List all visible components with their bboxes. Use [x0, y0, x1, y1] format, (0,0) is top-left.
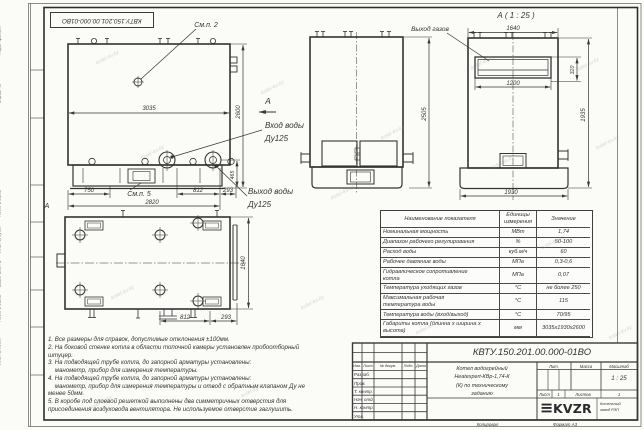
dim-1640-plan: 1640 [241, 256, 247, 270]
logo-caption-line2: завод РЭП [600, 408, 619, 414]
title-block-doc-number: КВТУ.150.201.00.000-01ВО [427, 345, 637, 362]
stamp-mass-label: Масса [571, 364, 601, 369]
spec-cell-units: °С [500, 294, 537, 310]
note-1: 1. Все размеры для справок, допустимые о… [48, 336, 360, 344]
stamp-lit-label: Лит. [537, 364, 571, 369]
dim-465: 465 [230, 171, 236, 180]
note-5: 5. В коробе под слоевой решеткой выполне… [48, 398, 360, 414]
label-water-in: Вход воды [265, 121, 304, 130]
stamp-col-izm: Изм. [352, 364, 362, 368]
spec-cell-value: 70/95 [537, 310, 590, 320]
spec-cell-name: Номинальная мощность [381, 228, 500, 238]
dim-293: 293 [222, 188, 234, 194]
section-a-view [447, 28, 592, 200]
stamp-row-prov: Пров. [354, 381, 366, 386]
plan-view [56, 211, 253, 326]
spec-cell-value: 0,07 [537, 268, 590, 284]
stamp-sheets-label: Листов [565, 392, 601, 397]
dim-320: 320 [570, 66, 576, 75]
stamp-scale-label: Масштаб [601, 364, 637, 369]
logo-caption-line1: Котельный [600, 402, 621, 408]
note-4: 4. На подводящей трубе котла, до запорно… [48, 375, 360, 398]
section-a-title: А ( 1 : 25 ) [496, 11, 535, 20]
drawing-sheet: См.п. 2 3035 2600 А Вход воды Ду125 Выхо… [0, 0, 644, 430]
note-3: 3. На подводящей трубе котла, до запорно… [48, 359, 360, 375]
frame-label-inv-podl: Инв. № подл. [0, 322, 4, 382]
spec-cell-name: Температура воды (вход/выход) [381, 310, 500, 320]
spec-cell-name: Диапазон рабочего регулирования [381, 238, 500, 248]
dim-1930: 1930 [504, 190, 518, 196]
dim-750: 750 [84, 188, 95, 194]
spec-cell-name: Температура уходящих газов [381, 284, 500, 294]
spec-cell-name: Рабочее давление воды [381, 258, 500, 268]
doc-title-line4: заданию [427, 390, 537, 398]
frame-label-sprav-no: Справ. № [0, 64, 4, 124]
stamp-row-nachotd: Нач. отд. [354, 397, 374, 402]
dim-812: 812 [193, 188, 204, 194]
stamp-scale-value: 1 : 25 [601, 375, 637, 382]
label-water-in-dn: Ду125 [264, 134, 289, 143]
dim-2820: 2820 [144, 200, 159, 206]
spec-cell-value: не более 250 [537, 284, 590, 294]
spec-cell-name: Габариты котла (длинна х ширина х высота… [381, 320, 500, 336]
doc-title-line2: Heatexpert-КВр-1,74-К [427, 373, 537, 381]
label-gas-outlet: Выход газов [411, 25, 449, 33]
front-view [301, 32, 432, 194]
spec-header-name: Наименование показателя [381, 211, 500, 228]
frame-label-perv-primen: Перв. примен. [0, 11, 4, 71]
dim-812-plan: 812 [180, 315, 191, 321]
spec-header-value: Значение [537, 211, 590, 228]
stamp-row-nkontr: Н. контр. [354, 405, 374, 410]
stamp-col-dokum: № докум. [374, 364, 402, 368]
spec-cell-units: °С [500, 284, 537, 294]
dim-2505: 2505 [422, 107, 428, 122]
doc-title-line3: (К) по техническому [427, 382, 537, 390]
spec-table: Наименование показателя Единицы измерени… [380, 210, 593, 338]
spec-cell-value: 60 [537, 248, 590, 258]
side-view [68, 29, 276, 210]
label-water-out-dn: Ду125 [247, 200, 272, 209]
spec-cell-units: МПа [500, 258, 537, 268]
format-label: Формат А3 [535, 422, 595, 427]
stamp-row-razrab: Разраб. [354, 372, 370, 377]
dim-1640-top: 1640 [506, 26, 520, 32]
spec-cell-name: Расход воды [381, 248, 500, 258]
kvzr-logo-text: KVZR [553, 402, 592, 416]
spec-cell-name: Гидравлическое сопротивление котла [381, 268, 500, 284]
spec-cell-units: МВт [500, 228, 537, 238]
spec-cell-name: Максимальная рабочая температура воды [381, 294, 500, 310]
stamp-sheet-value: 1 [552, 392, 565, 397]
dim-293-plan: 293 [220, 315, 232, 321]
kvzr-logo-icon: ≡ [540, 398, 553, 418]
stamp-row-utv: Утв. [354, 414, 364, 419]
zone-letter-a: А [44, 203, 50, 210]
spec-cell-value: 0,3-0,6 [537, 258, 590, 268]
callout-smp2: См.п. 2 [194, 22, 218, 29]
stamp-col-list: Лист [362, 364, 374, 368]
stamp-sheets-value: 1 [601, 392, 637, 397]
note-2: 2. На боковой стенке котла в области топ… [48, 344, 360, 360]
top-document-number: КВТУ.150.201.00.000-01ВО [62, 17, 142, 24]
spec-cell-value: 50-100 [537, 238, 590, 248]
callout-smp5: См.п. 5 [127, 191, 151, 198]
spec-cell-value: 1,74 [537, 228, 590, 238]
copied-label: Копировал [440, 422, 535, 427]
label-water-out: Выход воды [248, 187, 293, 196]
technical-notes: 1. Все размеры для справок, допустимые о… [48, 336, 360, 414]
spec-header-units: Единицы измерения [500, 211, 537, 228]
spec-cell-units: куб.м/ч [500, 248, 537, 258]
spec-cell-units: °С [500, 310, 537, 320]
stamp-col-data: Дата [415, 364, 427, 368]
dim-3035: 3035 [142, 106, 156, 112]
dim-2600: 2600 [236, 105, 242, 120]
spec-cell-value: 3035х1930х2600 [537, 320, 590, 336]
spec-cell-units: % [500, 238, 537, 248]
stamp-col-podp: Подп. [402, 364, 415, 368]
dim-1935: 1935 [581, 108, 587, 122]
spec-cell-value: 115 [537, 294, 590, 310]
stamp-sheet-label: Лист [537, 392, 552, 397]
stamp-row-tkontr: Т. контр. [354, 389, 373, 394]
spec-cell-units: МПа [500, 268, 537, 284]
doc-title-line1: Котел водогрейный [427, 365, 537, 373]
top-document-number-box: КВТУ.150.201.00.000-01ВО [50, 12, 154, 28]
dim-1200: 1200 [506, 81, 520, 87]
view-arrow-letter: А [264, 96, 271, 106]
spec-cell-units: мм [500, 320, 537, 336]
